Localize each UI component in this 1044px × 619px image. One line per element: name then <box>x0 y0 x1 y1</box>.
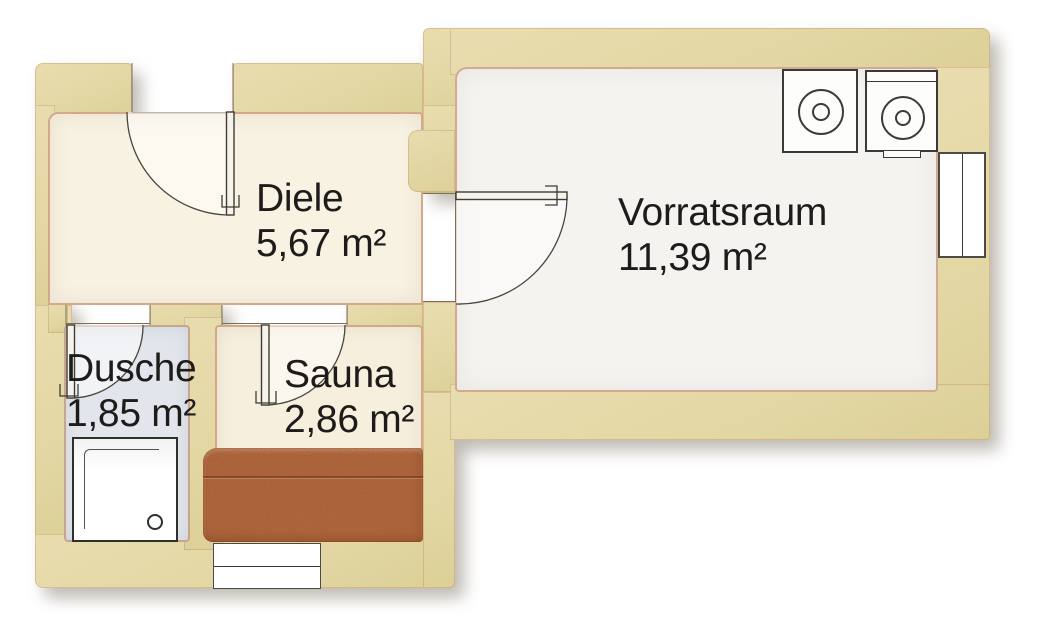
drain <box>147 514 163 530</box>
dryer-symbol <box>865 70 938 152</box>
window-right-wall <box>938 152 986 258</box>
window-divider <box>214 566 320 567</box>
dryer-control-panel <box>867 81 936 82</box>
room-name: Sauna <box>284 352 414 397</box>
door-vorratsraum <box>456 186 567 304</box>
room-label-dusche: Dusche 1,85 m² <box>66 346 196 436</box>
room-area: 1,85 m² <box>66 391 196 436</box>
room-label-diele: Diele 5,67 m² <box>256 176 386 266</box>
dryer-drum-inner <box>895 110 911 126</box>
door-leaf <box>262 325 270 405</box>
window-divider <box>962 154 963 256</box>
washing-machine-symbol <box>782 69 858 153</box>
floor-plan: Diele 5,67 m² Vorratsraum 11,39 m² Dusch… <box>0 0 1044 619</box>
room-area: 5,67 m² <box>256 221 386 266</box>
dryer-foot <box>883 150 921 158</box>
door-leaf <box>456 192 567 200</box>
bench-texture <box>203 448 423 542</box>
room-name: Diele <box>256 176 386 221</box>
washing-machine-drum-inner <box>812 103 830 121</box>
door-entrance <box>127 112 239 215</box>
window-bottom-wall <box>213 543 321 589</box>
room-name: Vorratsraum <box>618 190 827 235</box>
room-area: 2,86 m² <box>284 397 414 442</box>
room-label-sauna: Sauna 2,86 m² <box>284 352 414 442</box>
room-area: 11,39 m² <box>618 235 827 280</box>
bench-seam <box>203 476 423 478</box>
shower-tray <box>72 437 178 542</box>
door-leaf <box>227 112 235 215</box>
sauna-bench <box>203 448 423 542</box>
room-name: Dusche <box>66 346 196 391</box>
room-label-vorratsraum: Vorratsraum 11,39 m² <box>618 190 827 280</box>
